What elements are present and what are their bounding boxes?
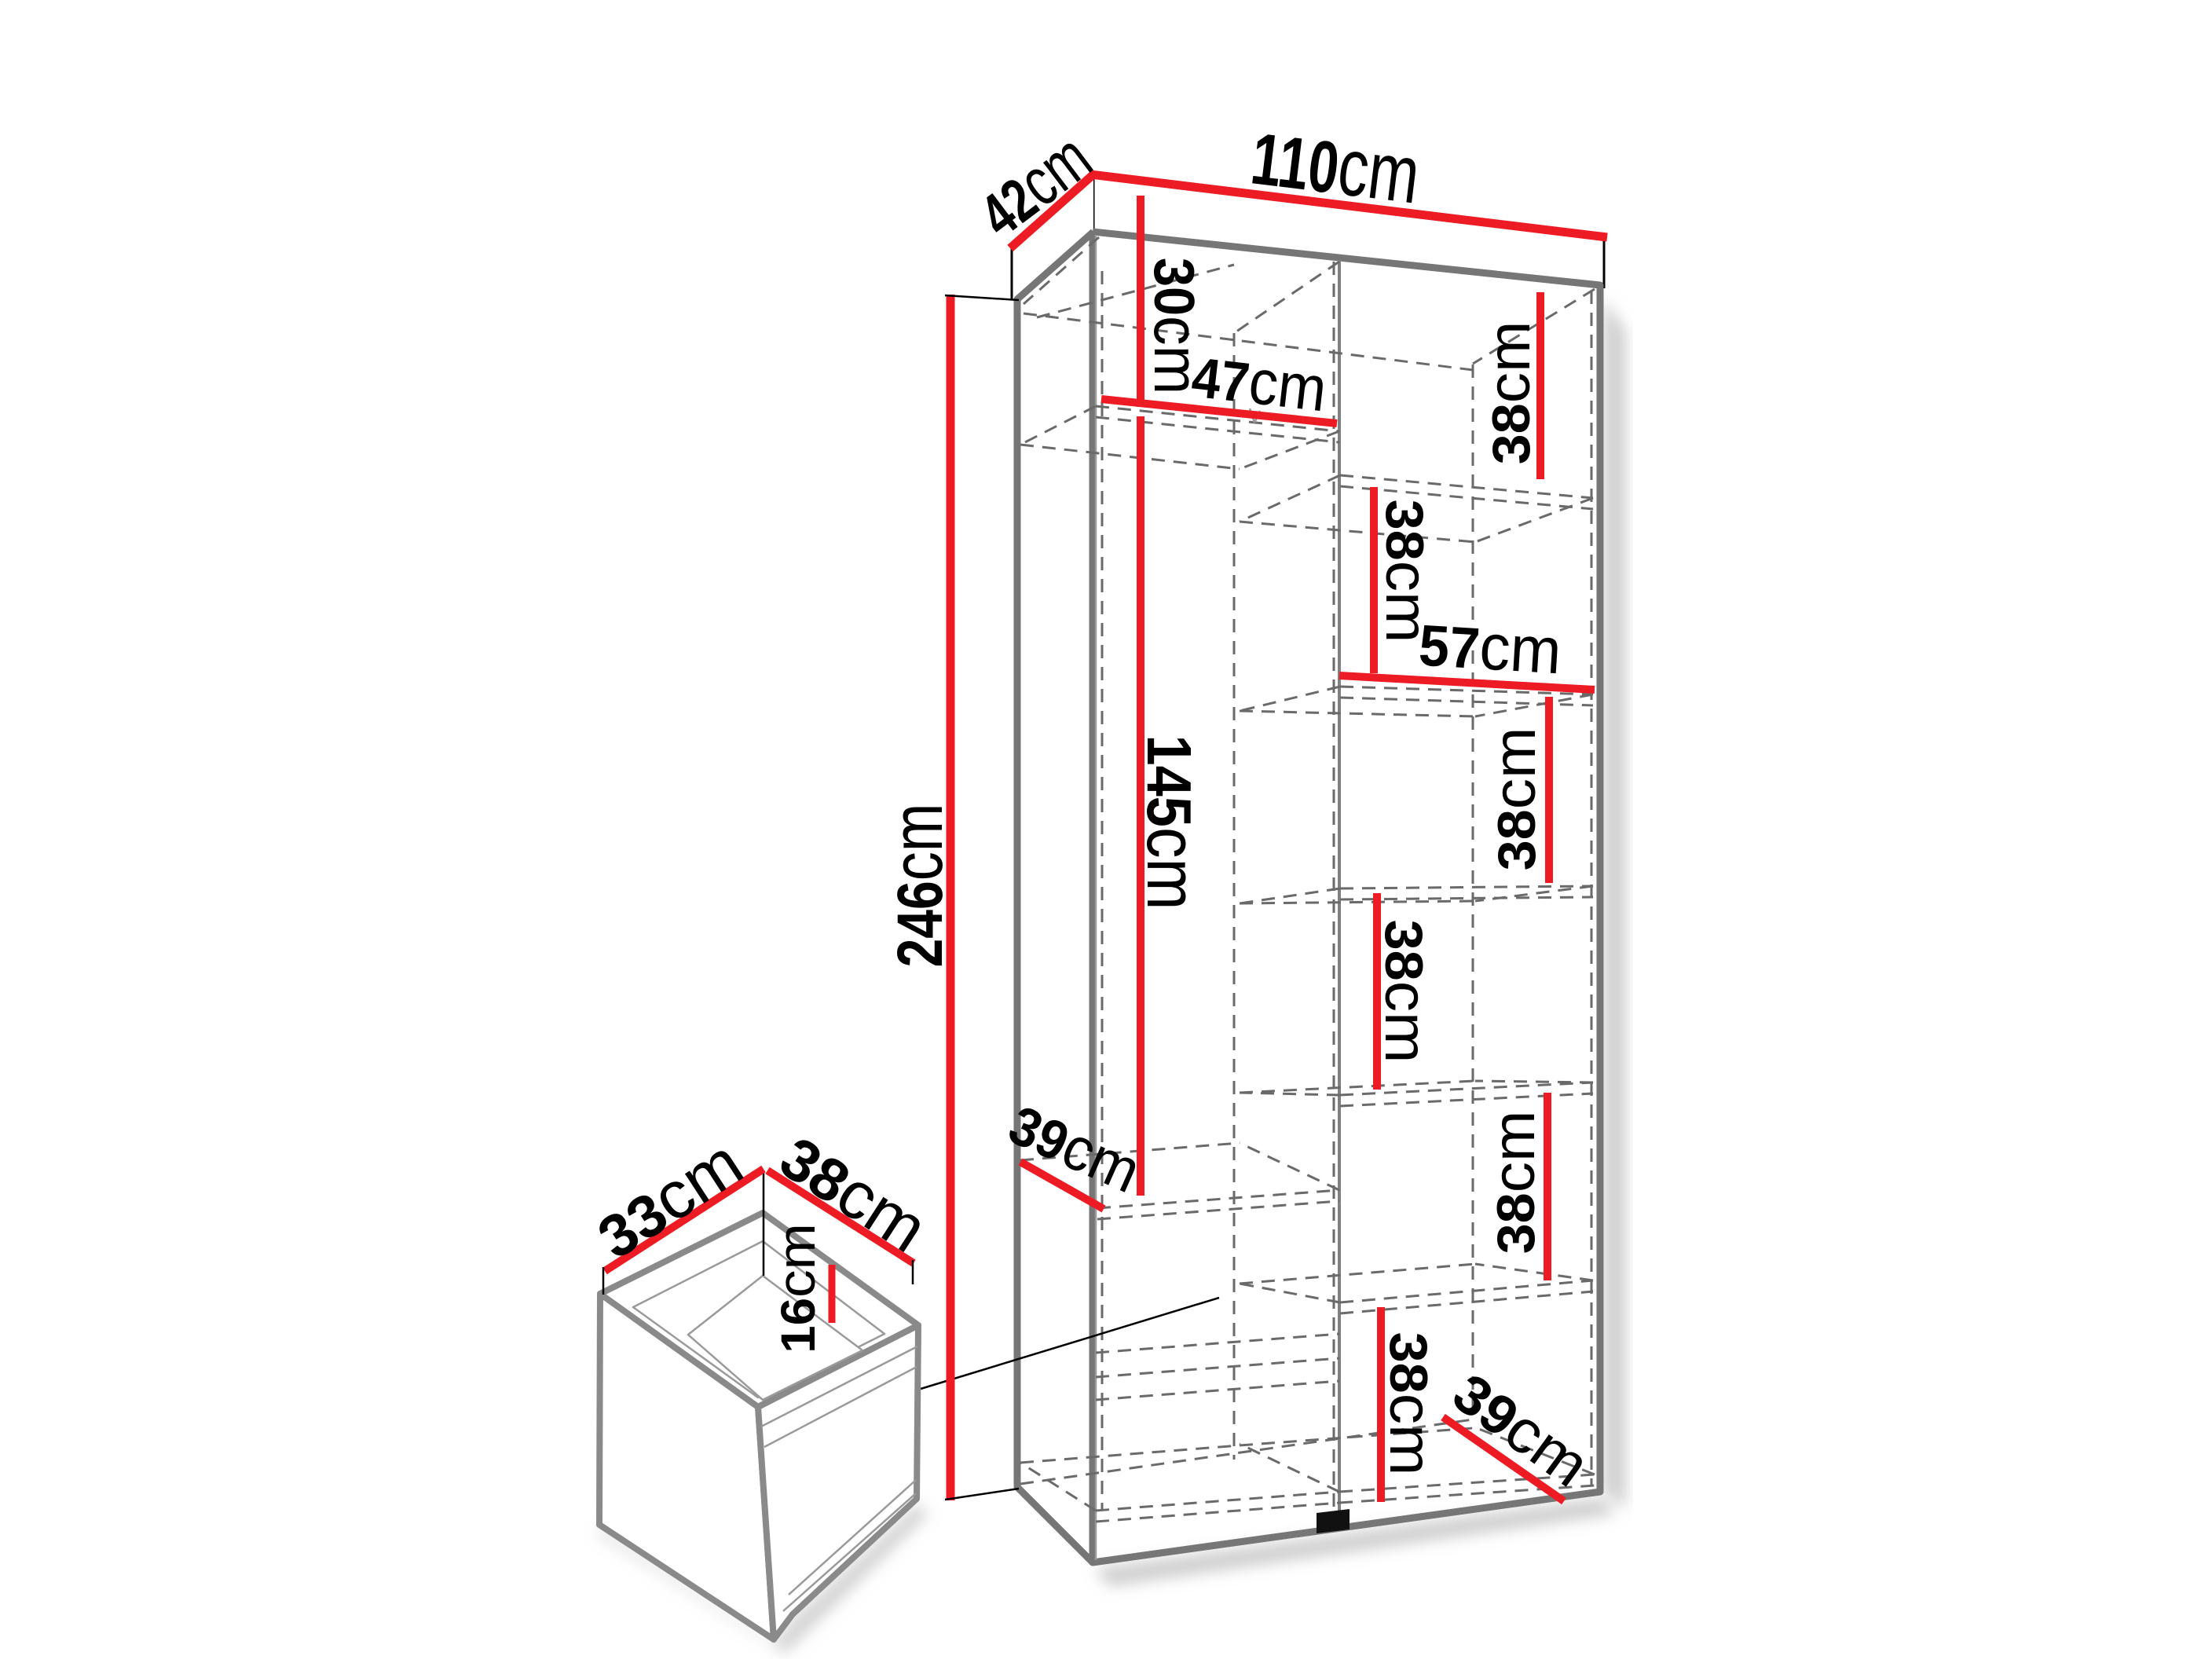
svg-text:16cm: 16cm [766, 1223, 826, 1353]
svg-text:38cm: 38cm [1476, 321, 1543, 465]
svg-text:38cm: 38cm [1481, 1111, 1547, 1255]
svg-text:38cm: 38cm [1373, 500, 1440, 643]
svg-text:145cm: 145cm [1133, 734, 1212, 910]
svg-text:38cm: 38cm [1481, 727, 1548, 871]
svg-text:246cm: 246cm [876, 804, 958, 968]
svg-text:38cm: 38cm [1372, 920, 1439, 1064]
svg-text:38cm: 38cm [1377, 1332, 1444, 1476]
